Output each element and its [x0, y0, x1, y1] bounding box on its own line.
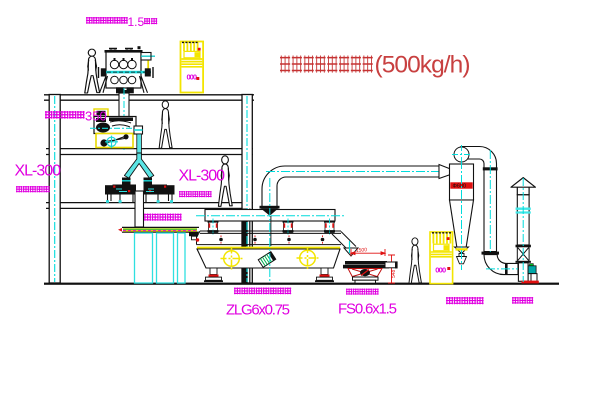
svg-text:350: 350 [85, 109, 107, 124]
svg-text:Φ600: Φ600 [453, 184, 467, 190]
svg-text:ZLG6x0.75: ZLG6x0.75 [226, 302, 290, 319]
svg-text:000: 000 [435, 266, 446, 275]
svg-text:1.5: 1.5 [128, 15, 145, 29]
svg-text:XL-300: XL-300 [15, 163, 62, 180]
svg-text:1500: 1500 [356, 247, 368, 254]
svg-text:(500kg/h): (500kg/h) [375, 52, 471, 79]
svg-text:000: 000 [187, 72, 198, 81]
svg-text:548: 548 [391, 269, 397, 278]
svg-text:XL-300: XL-300 [179, 168, 226, 185]
svg-text:FS0.6x1.5: FS0.6x1.5 [338, 301, 397, 318]
